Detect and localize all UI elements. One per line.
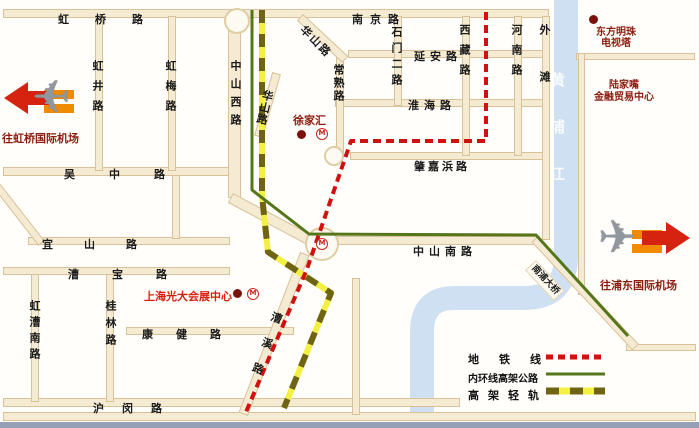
label-changshu-rd: 常熟路 [332, 64, 344, 103]
label-huaihai-rd: 淮海路 [408, 100, 456, 111]
metro-station-icon: M [316, 238, 328, 250]
legend-ring-sample [545, 369, 607, 379]
label-to-pudong-airport: 往浦东国际机场 [600, 277, 677, 293]
label-xizang-rd: 西藏路 [458, 24, 470, 84]
label-to-hongqiao-airport: 往虹桥国际机场 [2, 130, 79, 146]
hongqiao-airport-icon: ✈ [4, 74, 96, 132]
label-yishan-rd: 宜山路 [42, 239, 168, 250]
everbright-dot [233, 289, 242, 298]
label-zhaojiabang-rd: 肇嘉浜路 [414, 161, 470, 172]
label-guilin-rd: 桂林路 [104, 300, 116, 351]
label-huangpu-river: 黄浦江 [551, 72, 563, 213]
label-henan-rd: 河南路 [510, 24, 522, 84]
label-pearl-tower: 东方明珠 电视塔 [578, 27, 654, 49]
label-lujiazui: 陆家嘴 金融贸易中心 [586, 80, 662, 104]
legend-metro-sample [545, 352, 607, 362]
legend-rail-sample [545, 386, 607, 396]
arrow-shaft [642, 231, 668, 245]
label-yanan-rd: 延安路 [414, 51, 462, 62]
map-bottom-border [0, 422, 699, 428]
lujiazui-line1: 陆家嘴 [586, 80, 662, 92]
label-humin-rd: 沪闵路 [93, 403, 180, 414]
label-everbright-center: 上海光大会展中心 [144, 288, 232, 304]
shanghai-transit-map: 虹桥路 南京路 延安路 淮海路 肇嘉浜路 吴中路 宜山路 漕宝路 中山南路 康健… [0, 0, 699, 428]
label-wuzhong-rd: 吴中路 [64, 169, 199, 180]
xujiahui-dot [297, 130, 306, 139]
pearl-tower-dot [589, 15, 598, 24]
left-arrow-icon [4, 82, 28, 114]
metro-station-icon: M [316, 128, 328, 140]
label-shimener-rd: 石门二路 [390, 26, 402, 90]
label-hongqiao-rd: 虹桥路 [58, 14, 169, 25]
legend-rail-label: 高架轻轨 [468, 387, 548, 403]
label-hongcao-south-rd: 虹漕南路 [28, 300, 40, 364]
metro-station-icon: M [247, 288, 259, 300]
pearl-tower-line1: 东方明珠 [578, 27, 654, 38]
label-zhongshan-west-rd: 中山西路 [229, 60, 241, 132]
label-caobao-rd: 漕宝路 [68, 269, 200, 280]
airplane-icon: ✈ [32, 74, 71, 120]
airplane-icon: ✈ [598, 214, 637, 260]
label-xujiahui: 徐家汇 [293, 112, 326, 128]
pearl-tower-line2: 电视塔 [578, 38, 654, 49]
legend-ring-label: 内环线高架公路 [468, 370, 538, 385]
pudong-airport-icon: ✈ [598, 214, 692, 272]
lujiazui-line2: 金融贸易中心 [586, 92, 662, 104]
label-nanjing-rd: 南京路 [352, 14, 406, 25]
label-kangjian-rd: 康健路 [142, 329, 244, 340]
right-arrow-icon [666, 222, 690, 254]
label-hongmei-rd: 虹梅路 [164, 60, 176, 120]
label-zhongshan-south-rd: 中山南路 [413, 246, 477, 257]
transit-lines [0, 0, 699, 428]
